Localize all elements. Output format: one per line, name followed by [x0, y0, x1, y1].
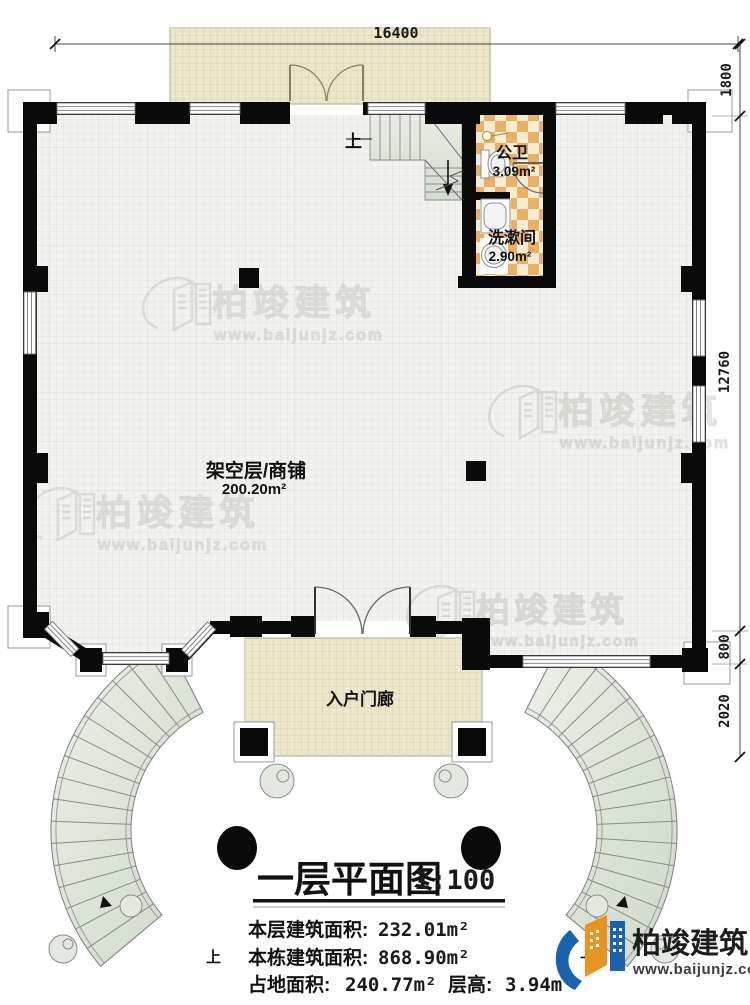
washroom-name: 洗漱间 [488, 228, 536, 247]
main-floor [37, 115, 692, 655]
dim-right-main: 12760 [717, 351, 733, 393]
round-column [217, 826, 257, 870]
dim-right-bottom: 2020 [717, 694, 733, 728]
curved-stair-right [525, 641, 677, 966]
stair-up-label: 上 [345, 132, 362, 151]
toilet-name: 公卫 [496, 144, 528, 162]
watermark-text: 柏竣建筑 [212, 282, 376, 323]
stair-up-label: 上 [206, 949, 221, 966]
brand-logo-icon [556, 915, 625, 990]
floor-plan-drawing: 柏竣建筑 www.baijunjz.com 柏竣建筑 www.baijunjz.… [0, 0, 750, 1005]
entry-porch-name: 入户门廊 [326, 689, 394, 709]
wash-basin-counter [481, 199, 510, 233]
curved-stair-left [51, 641, 203, 966]
stat-label: 层高: [448, 973, 492, 996]
dim-right-lower: 800 [717, 634, 733, 659]
stat-label: 占地面积: [248, 973, 330, 996]
stat-value: 232.01m² [378, 919, 470, 941]
watermark-text: 柏竣建筑 [96, 492, 260, 533]
main-room-name: 架空层/商铺 [205, 459, 306, 482]
toilet-area: 3.09m² [493, 164, 536, 179]
watermark-url: www.baijunjz.com [97, 537, 268, 554]
washroom-area: 2.90m² [489, 249, 532, 264]
stat-label: 本栋建筑面积: [248, 946, 368, 969]
watermark-url: www.baijunjz.com [477, 633, 639, 650]
dim-right-top: 1800 [719, 63, 735, 97]
title-block: 一层平面图 1:100 本层建筑面积: 232.01m² 本栋建筑面积: 868… [248, 859, 562, 996]
rear-porch [170, 28, 490, 104]
plan-scale: 1:100 [414, 865, 495, 896]
main-room-area: 200.20m² [222, 481, 286, 498]
brand-logo-url: www.baijunjz.com [632, 961, 750, 978]
stat-value: 240.77m² [345, 974, 437, 996]
interior-column [466, 461, 486, 481]
stat-value: 868.90m² [378, 947, 470, 969]
watermark-text: 柏竣建筑 [476, 591, 628, 630]
round-column [461, 826, 501, 870]
stat-value: 3.94m [505, 974, 562, 996]
stat-label: 本层建筑面积: [248, 918, 368, 941]
dim-top: 16400 [373, 24, 418, 42]
interior-column [239, 268, 259, 288]
watermark-url: www.baijunjz.com [213, 327, 384, 344]
floor-plan-page: 柏竣建筑 www.baijunjz.com 柏竣建筑 www.baijunjz.… [0, 0, 750, 1005]
brand-logo-text: 柏竣建筑 [632, 926, 748, 960]
